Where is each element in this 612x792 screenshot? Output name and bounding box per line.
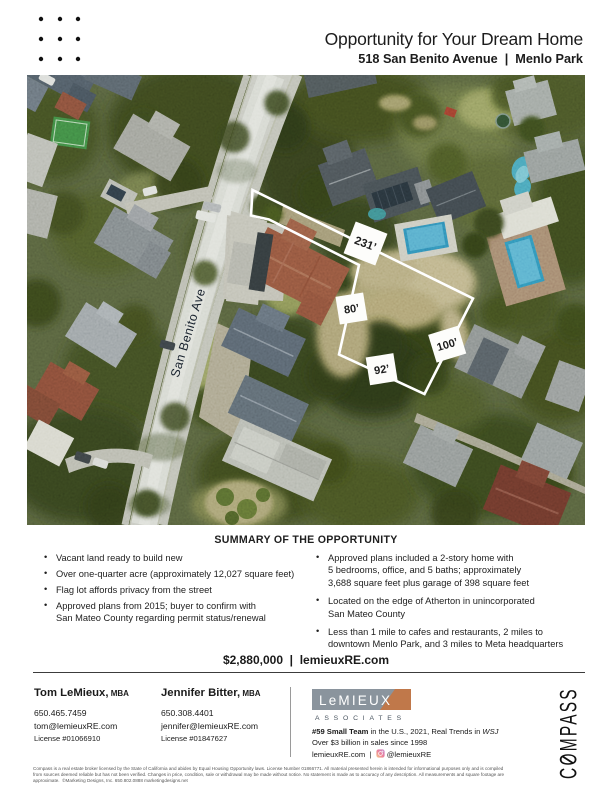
svg-text:OMPASS: OMPASS: [556, 687, 581, 765]
svg-text:80’: 80’: [343, 302, 360, 316]
svg-text:ASSOCIATES: ASSOCIATES: [315, 715, 406, 721]
svg-text:C: C: [556, 766, 581, 779]
svg-text:92’: 92’: [373, 363, 390, 377]
svg-text:LeMIEUX: LeMIEUX: [319, 693, 392, 708]
